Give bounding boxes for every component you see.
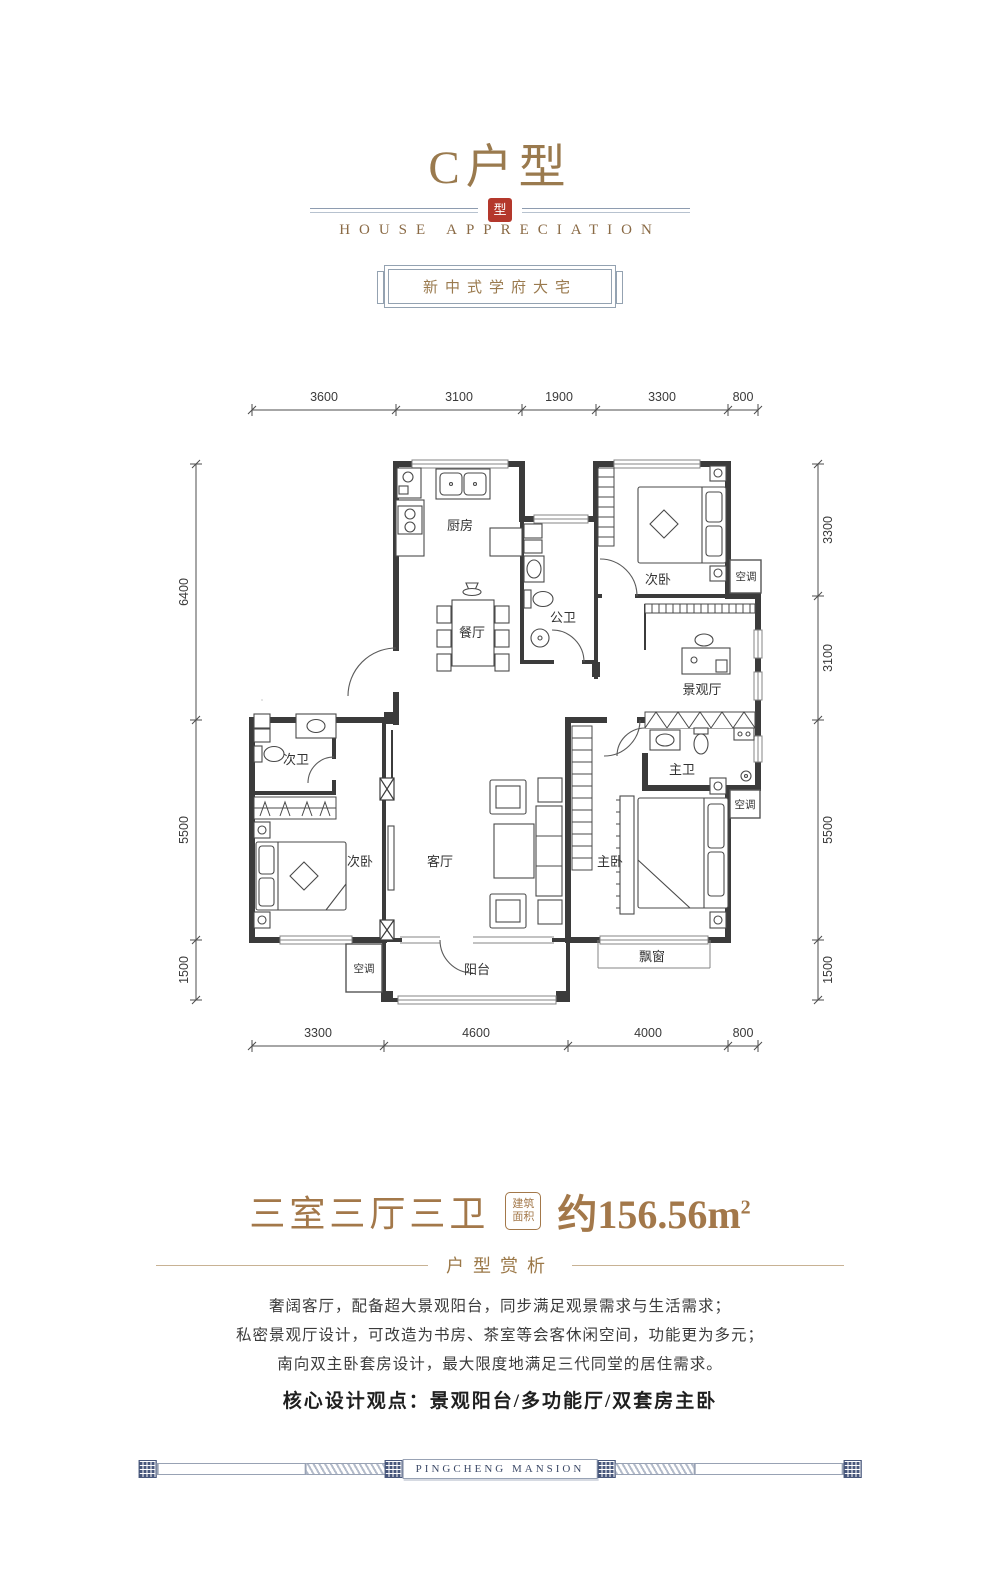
footer-wave-left [307,1463,385,1475]
rosette-icon [843,1460,861,1478]
dim-top-3: 1900 [545,390,573,404]
dim-left-3: 1500 [177,956,191,984]
label-ac-top-right: 空调 [736,570,757,583]
area-label-box: 建筑 面积 [505,1192,541,1230]
dim-bottom-3: 4000 [634,1026,662,1040]
area-label-line2: 面积 [512,1211,534,1224]
brochure-page: C户型 型 HOUSE APPRECIATION 新中式学府大宅 [0,0,1000,1576]
dim-bottom-2: 4600 [462,1026,490,1040]
analysis-paragraph: 奢阔客厅，配备超大景观阳台，同步满足观景需求与生活需求； 私密景观厅设计，可改造… [0,1292,1000,1379]
dim-right-4: 1500 [821,956,835,984]
analysis-line-2: 私密景观厅设计，可改造为书房、茶室等会客休闲空间，功能更为多元； [0,1321,1000,1350]
area-value: 约156.56m2 [557,1182,750,1240]
page-subtitle: HOUSE APPRECIATION [0,222,1000,239]
footer-bar-right [693,1463,843,1475]
footer-band: PINGCHENG MANSION [139,1459,862,1479]
rosette-icon [385,1460,403,1478]
dim-top-5: 800 [733,390,754,404]
dim-right-3: 5500 [821,816,835,844]
room-label-balcony: 阳台 [464,962,490,977]
area-superscript: 2 [741,1197,751,1219]
label-ac-mid-right: 空调 [735,798,756,811]
analysis-title: 户型赏析 [446,1252,554,1278]
dim-left-1: 6400 [177,578,191,606]
badge-plaque: 新中式学府大宅 [384,265,616,308]
dim-top-4: 3300 [648,390,676,404]
rosette-icon [139,1460,157,1478]
badge-endcap-right [616,271,623,304]
room-label-bath2: 次卫 [283,752,309,767]
brand-label: PINGCHENG MANSION [403,1459,598,1479]
area-label-line1: 建筑 [512,1198,534,1211]
title-divider: 型 [310,198,690,222]
analysis-line-left [156,1265,428,1266]
core-design-points: 核心设计观点：景观阳台/多功能厅/双套房主卧 [0,1386,1000,1413]
dim-right-1: 3300 [821,516,835,544]
dim-right-2: 3100 [821,644,835,672]
badge-endcap-left [377,271,384,304]
room-label-public-bath: 公卫 [550,610,576,625]
dim-bottom-4: 800 [733,1026,754,1040]
footer-bar-left [157,1463,307,1475]
dim-top-1: 3600 [310,390,338,404]
analysis-line-right [572,1265,844,1266]
room-label-bedroom2-bottom: 次卧 [347,854,373,869]
room-label-dining: 餐厅 [459,625,485,640]
spec-row: 三室三厅三卫 建筑 面积 约156.56m2 [0,1182,1000,1240]
floor-plan: 厨房 餐厅 公卫 次卧 景观厅 主卫 次卫 次卧 客厅 主卧 阳台 飘窗 空调 … [170,380,860,1080]
seal-stamp-icon: 型 [488,198,512,222]
room-label-kitchen: 厨房 [447,518,473,533]
dim-top-2: 3100 [445,390,473,404]
room-label-view-hall: 景观厅 [682,682,721,697]
label-ac-bottom-left: 空调 [354,962,375,975]
room-label-bay-window: 飘窗 [639,949,665,964]
analysis-line-3: 南向双主卧套房设计，最大限度地满足三代同堂的居住需求。 [0,1350,1000,1379]
badge-text: 新中式学府大宅 [388,269,612,304]
area-number: 约156.56m [557,1192,740,1237]
analysis-line-1: 奢阔客厅，配备超大景观阳台，同步满足观景需求与生活需求； [0,1292,1000,1321]
dim-bottom-1: 3300 [304,1026,332,1040]
footer-wave-right [615,1463,693,1475]
divider-line-right [522,208,690,213]
layout-spec: 三室三厅三卫 [249,1185,489,1237]
room-label-living: 客厅 [427,854,453,869]
page-title: C户型 [0,128,1000,197]
analysis-header: 户型赏析 [0,1252,1000,1278]
room-label-master: 主卧 [597,854,623,869]
furniture [254,466,754,928]
room-label-master-bath: 主卫 [669,762,695,777]
room-label-bedroom2-top: 次卧 [645,572,671,587]
divider-line-left [310,208,478,213]
walls-thin [385,604,645,778]
rosette-icon [597,1460,615,1478]
dim-left-2: 5500 [177,816,191,844]
